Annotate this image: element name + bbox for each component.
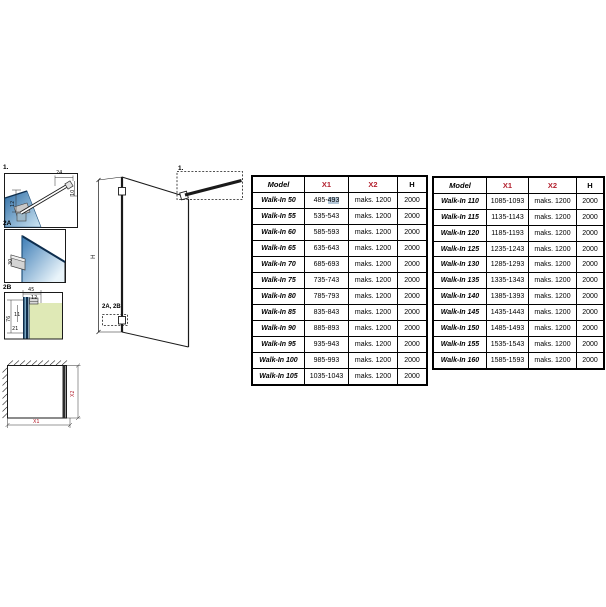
h-cell: 2000	[577, 305, 605, 321]
h-cell: 2000	[577, 193, 605, 209]
detail-1-dim-right: 10	[71, 190, 76, 196]
table-row: Walk-In 75735-743maks. 12002000	[252, 273, 427, 289]
h-cell: 2000	[577, 273, 605, 289]
model-cell: Walk-In 125	[433, 241, 487, 257]
detail-2b-dim-mid: 11	[14, 313, 20, 318]
table-row: Walk-In 1551535-1543maks. 12002000	[433, 336, 604, 352]
size-table-small-models: ModelX1X2HWalk-In 50485-493maks. 1200200…	[251, 175, 428, 386]
model-cell: Walk-In 75	[252, 273, 305, 289]
x1-cell: 585-593	[305, 225, 349, 241]
detail-2b-dim-top-inner: 12	[31, 296, 37, 301]
column-header-model: Model	[252, 176, 305, 193]
detail-2b-dim-top: 45	[28, 288, 34, 293]
table-row: Walk-In 95935-943maks. 12002000	[252, 337, 427, 353]
x2-cell: maks. 1200	[529, 193, 577, 209]
x1-cell: 935-943	[305, 337, 349, 353]
x2-cell: maks. 1200	[349, 193, 398, 209]
h-cell: 2000	[398, 273, 428, 289]
walk-in-sizes-110-160: ModelX1X2HWalk-In 1101085-1093maks. 1200…	[432, 176, 605, 370]
h-cell: 2000	[577, 336, 605, 352]
h-cell: 2000	[577, 257, 605, 273]
model-cell: Walk-In 60	[252, 225, 305, 241]
header-row: ModelX1X2H	[252, 176, 427, 193]
table-row: Walk-In 1101085-1093maks. 12002000	[433, 193, 604, 209]
h-cell: 2000	[398, 305, 428, 321]
table-row: Walk-In 1401385-1393maks. 12002000	[433, 289, 604, 305]
h-cell: 2000	[398, 193, 428, 209]
x2-cell: maks. 1200	[529, 352, 577, 368]
x1-cell: 785-793	[305, 289, 349, 305]
h-cell: 2000	[398, 209, 428, 225]
table-row: Walk-In 70685-693maks. 12002000	[252, 257, 427, 273]
x1-cell: 885-893	[305, 321, 349, 337]
h-cell: 2000	[398, 241, 428, 257]
spec-sheet-page: { "page": { "background": "#ffffff" }, "…	[0, 0, 606, 607]
table-row: Walk-In 1351335-1343maks. 12002000	[433, 273, 604, 289]
h-cell: 2000	[577, 321, 605, 337]
h-cell: 2000	[577, 209, 605, 225]
h-cell: 2000	[398, 337, 428, 353]
x1-cell: 1135-1143	[487, 209, 529, 225]
detail-2b-dim-bottom: 21	[12, 327, 18, 332]
x2-cell: maks. 1200	[349, 353, 398, 369]
detail-2a-drawing	[5, 230, 66, 283]
column-header-x1: X1	[305, 176, 349, 193]
x1-cell: 1235-1243	[487, 241, 529, 257]
table-row: Walk-In 80785-793maks. 12002000	[252, 289, 427, 305]
table-row: Walk-In 1301285-1293maks. 12002000	[433, 257, 604, 273]
detail-2b-label: 2B	[3, 285, 11, 292]
detail-2a-label: 2A	[3, 221, 11, 228]
column-header-x2: X2	[529, 177, 577, 193]
x1-cell: 485-493	[305, 193, 349, 209]
x2-cell: maks. 1200	[529, 321, 577, 337]
h-cell: 2000	[398, 225, 428, 241]
x2-cell: maks. 1200	[349, 305, 398, 321]
x2-cell: maks. 1200	[349, 337, 398, 353]
model-cell: Walk-In 55	[252, 209, 305, 225]
model-cell: Walk-In 150	[433, 321, 487, 337]
model-cell: Walk-In 50	[252, 193, 305, 209]
x2-cell: maks. 1200	[349, 225, 398, 241]
column-header-x1: X1	[487, 177, 529, 193]
table-row: Walk-In 1501485-1493maks. 12002000	[433, 321, 604, 337]
x2-cell: maks. 1200	[349, 273, 398, 289]
model-cell: Walk-In 130	[433, 257, 487, 273]
elevation-callout-bottom-label: 2A, 2B	[102, 304, 121, 310]
table-row: Walk-In 90885-893maks. 12002000	[252, 321, 427, 337]
model-cell: Walk-In 160	[433, 352, 487, 368]
x2-cell: maks. 1200	[529, 289, 577, 305]
table-row: Walk-In 1151135-1143maks. 12002000	[433, 209, 604, 225]
model-cell: Walk-In 95	[252, 337, 305, 353]
text-selection-highlight: 493	[328, 197, 340, 204]
model-cell: Walk-In 90	[252, 321, 305, 337]
x1-cell: 1335-1343	[487, 273, 529, 289]
model-cell: Walk-In 100	[252, 353, 305, 369]
x1-cell: 1185-1193	[487, 225, 529, 241]
detail-1-dim-top: 24	[56, 171, 62, 176]
x1-cell: 1285-1293	[487, 257, 529, 273]
column-header-x2: X2	[349, 176, 398, 193]
model-cell: Walk-In 145	[433, 305, 487, 321]
x2-cell: maks. 1200	[349, 289, 398, 305]
walk-in-sizes-50-105: ModelX1X2HWalk-In 50485-493maks. 1200200…	[251, 175, 428, 386]
plan-depth-dim: X2	[71, 390, 76, 397]
x2-cell: maks. 1200	[529, 209, 577, 225]
x1-cell: 635-643	[305, 241, 349, 257]
table-row: Walk-In 1201185-1193maks. 12002000	[433, 225, 604, 241]
model-cell: Walk-In 155	[433, 336, 487, 352]
table-row: Walk-In 60585-593maks. 12002000	[252, 225, 427, 241]
h-cell: 2000	[398, 321, 428, 337]
h-cell: 2000	[577, 289, 605, 305]
model-cell: Walk-In 115	[433, 209, 487, 225]
h-cell: 2000	[398, 369, 428, 386]
x1-cell: 1435-1443	[487, 305, 529, 321]
model-cell: Walk-In 120	[433, 225, 487, 241]
column-header-h: H	[398, 176, 428, 193]
h-cell: 2000	[398, 257, 428, 273]
x2-cell: maks. 1200	[349, 241, 398, 257]
detail-2b-dim-left: 76	[7, 316, 12, 322]
h-cell: 2000	[577, 225, 605, 241]
table-row: Walk-In 1051035-1043maks. 12002000	[252, 369, 427, 386]
elevation-callout-top-label: 1.	[178, 166, 183, 173]
x1-cell: 1035-1043	[305, 369, 349, 386]
detail-1-label: 1.	[3, 165, 8, 172]
column-header-h: H	[577, 177, 605, 193]
model-cell: Walk-In 85	[252, 305, 305, 321]
h-cell: 2000	[398, 353, 428, 369]
model-cell: Walk-In 70	[252, 257, 305, 273]
table-row: Walk-In 50485-493maks. 12002000	[252, 193, 427, 209]
x2-cell: maks. 1200	[529, 305, 577, 321]
x2-cell: maks. 1200	[529, 336, 577, 352]
h-cell: 2000	[577, 352, 605, 368]
x2-cell: maks. 1200	[529, 241, 577, 257]
table-row: Walk-In 1601585-1593maks. 12002000	[433, 352, 604, 368]
table-row: Walk-In 100985-993maks. 12002000	[252, 353, 427, 369]
x1-cell: 1535-1543	[487, 336, 529, 352]
model-cell: Walk-In 140	[433, 289, 487, 305]
h-cell: 2000	[577, 241, 605, 257]
x2-cell: maks. 1200	[529, 257, 577, 273]
table-row: Walk-In 55535-543maks. 12002000	[252, 209, 427, 225]
table-row: Walk-In 65635-643maks. 12002000	[252, 241, 427, 257]
plan-width-dim: X1	[33, 420, 40, 425]
h-cell: 2000	[398, 289, 428, 305]
table-row: Walk-In 85835-843maks. 12002000	[252, 305, 427, 321]
x1-cell: 1485-1493	[487, 321, 529, 337]
x2-cell: maks. 1200	[529, 273, 577, 289]
plan-view-drawing	[3, 361, 81, 429]
table-row: Walk-In 1251235-1243maks. 12002000	[433, 241, 604, 257]
x1-cell: 1585-1593	[487, 352, 529, 368]
size-table-large-models: ModelX1X2HWalk-In 1101085-1093maks. 1200…	[432, 176, 605, 370]
x2-cell: maks. 1200	[349, 321, 398, 337]
x1-cell: 1085-1093	[487, 193, 529, 209]
model-cell: Walk-In 65	[252, 241, 305, 257]
x1-value-prefix: 485-	[314, 197, 328, 204]
model-cell: Walk-In 80	[252, 289, 305, 305]
column-header-model: Model	[433, 177, 487, 193]
model-cell: Walk-In 110	[433, 193, 487, 209]
detail-2a-dim: 30	[9, 259, 14, 265]
x2-cell: maks. 1200	[529, 225, 577, 241]
model-cell: Walk-In 135	[433, 273, 487, 289]
detail-1-dim-left: 12	[11, 201, 16, 207]
x1-cell: 835-843	[305, 305, 349, 321]
x1-cell: 735-743	[305, 273, 349, 289]
x2-cell: maks. 1200	[349, 257, 398, 273]
elevation-drawing	[97, 172, 243, 348]
table-row: Walk-In 1451435-1443maks. 12002000	[433, 305, 604, 321]
x1-cell: 685-693	[305, 257, 349, 273]
header-row: ModelX1X2H	[433, 177, 604, 193]
x2-cell: maks. 1200	[349, 369, 398, 386]
x1-cell: 985-993	[305, 353, 349, 369]
elevation-height-dim: H	[91, 254, 97, 259]
x1-cell: 535-543	[305, 209, 349, 225]
model-cell: Walk-In 105	[252, 369, 305, 386]
x2-cell: maks. 1200	[349, 209, 398, 225]
x1-cell: 1385-1393	[487, 289, 529, 305]
